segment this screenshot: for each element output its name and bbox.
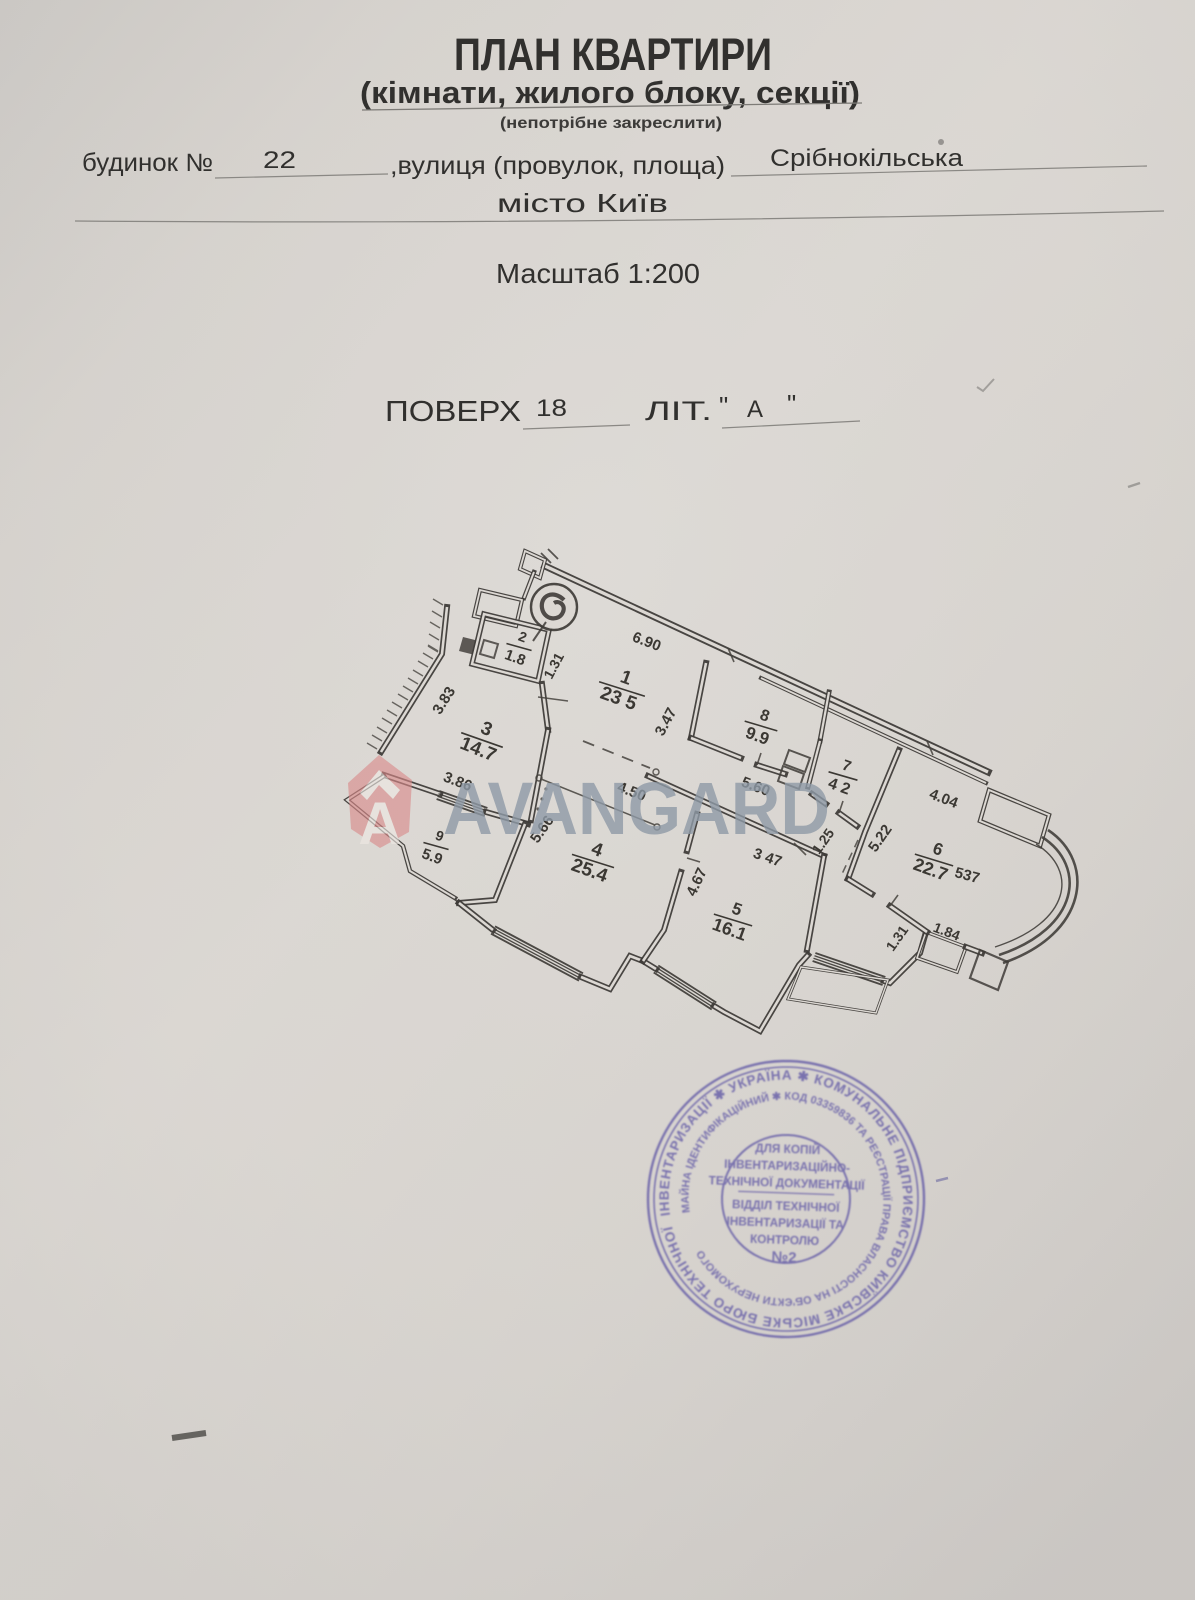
svg-text:ЛІТ.: ЛІТ.	[645, 396, 712, 426]
svg-text:(непотрібне закреслити): (непотрібне закреслити)	[500, 115, 722, 132]
svg-text:№2: №2	[771, 1249, 797, 1267]
svg-text:AVANGARD: AVANGARD	[443, 767, 830, 850]
svg-text:,вулиця (провулок, площа): ,вулиця (провулок, площа)	[390, 152, 725, 180]
svg-text:ДЛЯ КОПІЙ: ДЛЯ КОПІЙ	[755, 1141, 821, 1157]
svg-text:Масштаб 1:200: Масштаб 1:200	[496, 258, 700, 289]
svg-text:(кімнати, жилого блоку, секції: (кімнати, жилого блоку, секції)	[360, 75, 860, 110]
svg-text:": "	[719, 391, 728, 421]
svg-text:ПЛАН КВАРТИРИ: ПЛАН КВАРТИРИ	[454, 29, 772, 80]
svg-text:Срібнокільська: Срібнокільська	[770, 145, 964, 172]
svg-text:18: 18	[536, 395, 567, 422]
svg-text:КОНТРОЛЮ: КОНТРОЛЮ	[750, 1232, 820, 1248]
svg-text:будинок №: будинок №	[82, 149, 213, 177]
svg-text:A: A	[358, 790, 401, 857]
svg-text:ПОВЕРХ: ПОВЕРХ	[385, 396, 521, 428]
svg-text:А: А	[747, 396, 763, 423]
svg-text:місто Київ: місто Київ	[497, 188, 668, 218]
svg-text:": "	[787, 389, 796, 419]
svg-text:22: 22	[263, 147, 296, 174]
